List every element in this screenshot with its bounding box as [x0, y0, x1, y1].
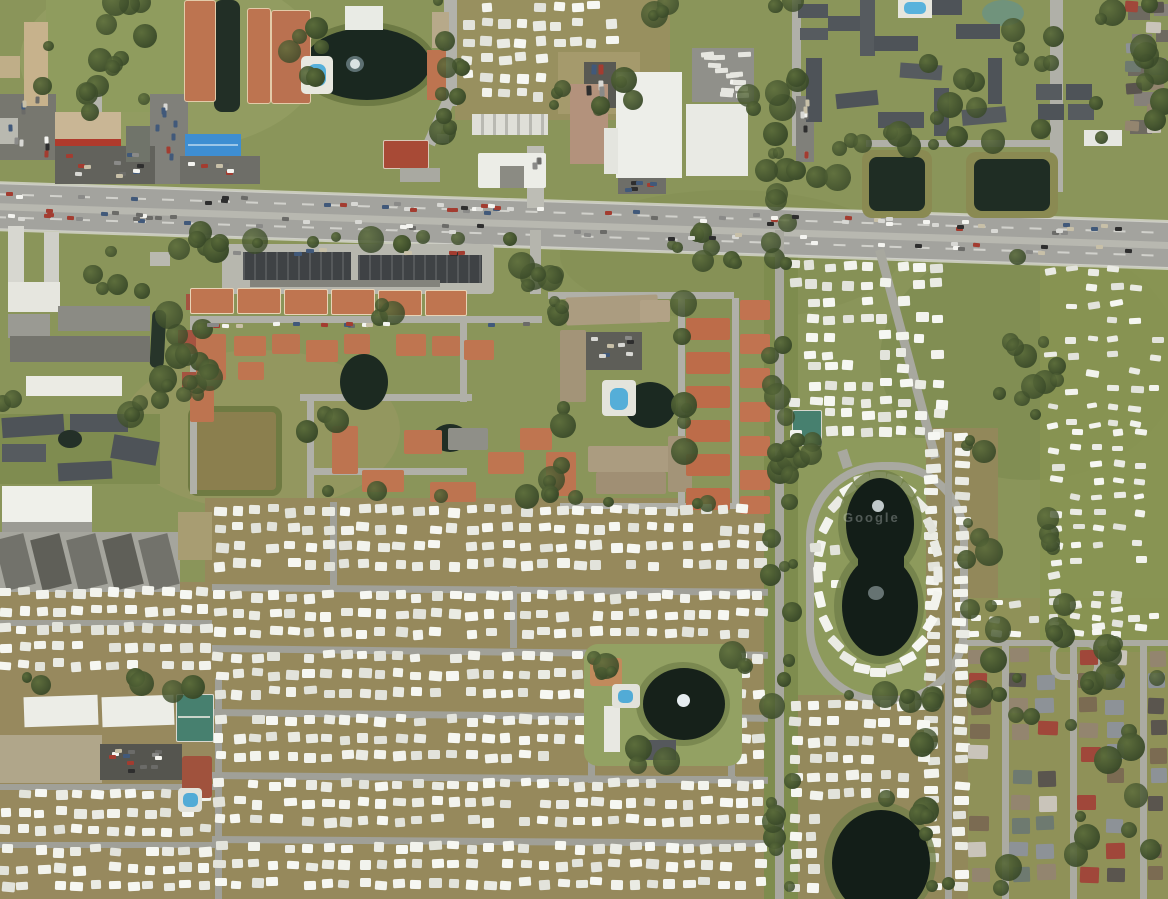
industrial-building: [686, 104, 748, 176]
mobile-home: [284, 778, 296, 787]
mobile-home: [466, 558, 478, 568]
mobile-home: [825, 407, 835, 415]
mobile-home: [321, 860, 334, 870]
mobile-home: [591, 862, 603, 873]
mobile-home: [933, 566, 942, 582]
building: [150, 252, 170, 266]
pool: [904, 2, 926, 14]
mobile-home: [375, 561, 387, 571]
mobile-home: [683, 860, 695, 869]
traffic: [584, 233, 591, 237]
mobile-home: [18, 790, 30, 799]
parked-car: [44, 136, 48, 143]
mobile-home: [701, 796, 714, 805]
mobile-home: [304, 506, 315, 515]
parked-car: [636, 181, 643, 185]
mobile-home: [251, 593, 264, 603]
mobile-home: [498, 19, 511, 29]
roof-seams: [358, 255, 482, 283]
google-watermark: Google: [843, 510, 900, 525]
mobile-home: [197, 604, 208, 614]
mobile-home: [124, 589, 135, 599]
tree: [900, 689, 915, 704]
parked-car: [128, 769, 135, 773]
condo-building: [596, 472, 666, 494]
tree: [211, 234, 229, 252]
tree: [434, 489, 448, 503]
tree: [555, 300, 569, 314]
tree: [1107, 636, 1123, 652]
rv-trailer: [1152, 337, 1164, 343]
traffic: [574, 230, 581, 234]
mobile-home: [338, 879, 349, 888]
mobile-home: [954, 461, 969, 469]
mobile-home: [809, 382, 821, 391]
building: [448, 428, 488, 450]
street: [190, 316, 542, 323]
mobile-home: [576, 880, 588, 888]
condo-building: [331, 289, 375, 315]
mobile-home: [647, 879, 658, 888]
mobile-home: [321, 878, 333, 887]
traffic: [1038, 250, 1045, 254]
mobile-home: [591, 797, 604, 807]
mobile-home: [664, 629, 676, 639]
parked-car: [123, 754, 130, 758]
mobile-home: [558, 879, 570, 888]
mobile-home: [89, 844, 101, 853]
mobile-home: [429, 627, 442, 636]
mobile-home: [501, 504, 512, 514]
mobile-home: [467, 718, 478, 727]
mobile-home: [324, 843, 335, 852]
aerial-canvas[interactable]: Google: [0, 0, 1168, 899]
mobile-home: [378, 543, 390, 552]
mobile-home: [555, 840, 566, 850]
parked-car: [625, 336, 632, 340]
tree: [670, 290, 697, 317]
tree: [1038, 336, 1049, 347]
mobile-home: [216, 672, 229, 681]
mobile-home: [482, 541, 495, 550]
mobile-home: [377, 816, 388, 825]
mobile-home: [502, 859, 514, 869]
mobile-home: [448, 508, 461, 519]
rv-trailer: [1088, 335, 1099, 341]
mobile-home: [287, 860, 300, 869]
house: [969, 816, 989, 832]
street: [1140, 640, 1147, 899]
tree: [656, 5, 669, 18]
mobile-home: [338, 715, 349, 726]
mobile-home: [876, 314, 887, 324]
rv-trailer: [1087, 268, 1099, 276]
mobile-home: [880, 350, 890, 360]
mobile-home: [432, 591, 443, 601]
rv-trailer: [1136, 556, 1147, 563]
rv-trailer: [1070, 558, 1082, 564]
mobile-home: [645, 540, 656, 549]
mobile-home: [485, 753, 499, 763]
mobile-home: [536, 779, 548, 789]
parked-car: [222, 323, 229, 327]
mobile-home: [234, 627, 246, 635]
mobile-home: [412, 859, 422, 868]
mobile-home: [646, 779, 657, 789]
mobile-home: [861, 755, 874, 765]
mobile-home: [304, 627, 315, 637]
parked-car: [163, 110, 167, 117]
mobile-home: [270, 814, 283, 824]
traffic: [1096, 245, 1103, 249]
mobile-home: [573, 560, 587, 570]
mobile-home: [376, 591, 389, 600]
mobile-home: [923, 769, 938, 779]
mobile-home: [791, 849, 803, 859]
parked-car: [132, 153, 139, 157]
mobile-home: [554, 39, 566, 47]
mobile-home: [145, 810, 157, 819]
mobile-home: [573, 817, 586, 825]
mobile-home: [341, 628, 352, 638]
mobile-home: [822, 281, 832, 290]
parked-car: [236, 324, 243, 328]
mobile-home: [320, 669, 332, 678]
traffic: [1026, 250, 1033, 254]
mobile-home: [252, 654, 264, 664]
rv-trailer: [1108, 419, 1119, 426]
rv-trailer: [1029, 616, 1039, 623]
parked-car: [22, 100, 26, 107]
traffic: [962, 220, 969, 224]
rv-trailer: [1086, 284, 1097, 292]
mobile-home: [304, 612, 316, 622]
mobile-home: [648, 562, 659, 571]
tree: [1008, 707, 1024, 723]
mobile-home: [585, 39, 596, 49]
mobile-home: [321, 781, 332, 791]
mobile-home: [791, 736, 802, 745]
traffic: [811, 240, 818, 244]
tree: [196, 364, 223, 391]
mobile-home: [517, 74, 530, 84]
mobile-home: [322, 507, 335, 516]
mobile-home: [484, 504, 495, 512]
mobile-home: [376, 609, 386, 619]
mobile-home: [554, 2, 566, 12]
mobile-home: [446, 750, 457, 759]
tree: [314, 40, 329, 55]
mobile-home: [610, 594, 622, 605]
mobile-home: [841, 396, 853, 405]
mobile-home: [502, 522, 514, 531]
parked-car: [366, 323, 373, 327]
tree: [1041, 533, 1060, 552]
traffic: [932, 223, 939, 227]
mobile-home: [736, 814, 749, 823]
parked-car: [173, 120, 177, 127]
mobile-home: [411, 687, 422, 696]
mobile-home: [338, 860, 351, 870]
mobile-home: [955, 644, 968, 654]
mobile-home: [861, 313, 874, 322]
parked-car: [404, 251, 412, 255]
rv-trailer: [1094, 509, 1106, 515]
mobile-home: [843, 261, 856, 271]
mobile-home: [629, 607, 639, 616]
traffic: [410, 208, 417, 212]
mobile-home: [498, 56, 511, 66]
rv-trailer: [1149, 385, 1159, 391]
mobile-home: [213, 797, 226, 808]
mobile-home: [589, 540, 602, 551]
mobile-home: [411, 751, 423, 760]
mobile-home: [396, 714, 407, 723]
mobile-home: [845, 701, 858, 710]
traffic: [842, 220, 849, 224]
industrial-building: [8, 314, 50, 338]
traffic: [537, 207, 544, 211]
rv-trailer: [1150, 354, 1162, 361]
mobile-home: [53, 825, 65, 835]
mobile-home: [358, 816, 369, 825]
condo-building: [396, 334, 426, 356]
mobile-home: [953, 589, 968, 597]
tree: [872, 681, 899, 708]
tree: [653, 747, 681, 775]
apartment-building: [956, 24, 1000, 39]
fountain: [677, 694, 690, 707]
mobile-home: [214, 562, 226, 573]
traffic: [886, 217, 893, 221]
mobile-home: [146, 847, 159, 856]
mobile-home: [358, 796, 370, 805]
mobile-home: [302, 844, 313, 853]
warehouse: [26, 376, 122, 396]
house: [1011, 794, 1030, 809]
apartment-building: [2, 444, 46, 462]
mobile-home: [324, 561, 335, 571]
mobile-home: [879, 427, 892, 437]
traffic: [978, 223, 985, 227]
mobile-home: [396, 845, 408, 854]
mobile-home: [571, 17, 582, 26]
traffic: [355, 220, 362, 224]
mobile-home: [411, 797, 423, 807]
rv-trailer: [1129, 318, 1141, 324]
parked-car: [137, 164, 144, 168]
traffic: [76, 217, 83, 221]
mobile-home: [896, 426, 907, 435]
mobile-home: [266, 716, 278, 725]
mobile-home: [954, 576, 969, 584]
mobile-home: [734, 843, 746, 851]
mobile-home: [180, 604, 192, 613]
mobile-home: [718, 881, 730, 890]
mobile-home: [269, 782, 281, 792]
parked-car: [625, 188, 632, 192]
mobile-home: [142, 828, 155, 836]
fountain: [868, 586, 884, 600]
mobile-home: [482, 18, 494, 27]
mobile-home: [214, 878, 226, 887]
mobile-home: [414, 718, 426, 727]
mobile-home: [810, 790, 823, 800]
mobile-home: [284, 609, 296, 619]
parked-car: [318, 248, 326, 252]
tree: [81, 103, 99, 121]
mobile-home: [179, 862, 192, 872]
rv-trailer: [1093, 477, 1104, 484]
house: [1150, 719, 1166, 734]
mobile-home: [571, 859, 582, 868]
mobile-home: [926, 659, 939, 667]
traffic: [633, 210, 640, 214]
mobile-home: [285, 845, 295, 853]
mobile-home: [753, 750, 765, 759]
mobile-home: [809, 716, 821, 726]
traffic: [700, 218, 707, 222]
parked-car: [626, 352, 633, 356]
mobile-home: [466, 668, 479, 679]
house: [1125, 1, 1139, 13]
mobile-home: [73, 866, 86, 877]
tree: [783, 654, 795, 666]
mobile-home: [339, 817, 352, 827]
tree: [132, 395, 149, 412]
tree: [1095, 662, 1123, 690]
mobile-home: [841, 359, 852, 370]
traffic: [845, 216, 852, 220]
mobile-home: [234, 753, 246, 763]
mobile-home: [590, 560, 601, 570]
carport: [250, 280, 440, 287]
tree: [761, 232, 781, 252]
tree: [451, 232, 464, 245]
traffic: [205, 201, 212, 205]
rv-trailer: [1135, 463, 1146, 469]
traffic: [303, 220, 310, 224]
mobile-home: [268, 590, 280, 600]
mobile-home: [107, 809, 120, 818]
mobile-home: [2, 844, 13, 853]
mobile-home: [824, 396, 836, 406]
mobile-home: [666, 506, 678, 516]
mobile-home: [755, 859, 767, 869]
mobile-home: [306, 780, 317, 790]
parked-car: [115, 749, 122, 753]
mobile-home: [644, 798, 655, 807]
mobile-home: [70, 624, 81, 633]
rv-trailer: [1065, 337, 1076, 344]
traffic: [437, 203, 444, 207]
tree: [922, 692, 942, 712]
mobile-home: [503, 841, 515, 852]
mobile-home: [0, 622, 12, 632]
traffic: [507, 207, 514, 211]
parked-car: [591, 65, 596, 75]
mobile-home: [53, 608, 66, 617]
parked-car: [618, 342, 625, 346]
mobile-home: [234, 541, 245, 551]
traffic: [6, 192, 13, 196]
mobile-home: [626, 591, 637, 600]
condo-building: [488, 452, 524, 474]
mobile-home: [608, 816, 619, 825]
mobile-home: [0, 587, 11, 596]
mobile-home: [180, 624, 192, 633]
mobile-home: [198, 863, 209, 873]
mobile-home: [323, 626, 334, 637]
mobile-home: [804, 260, 815, 270]
mobile-home: [178, 880, 190, 888]
pond: [858, 538, 904, 582]
mobile-home: [304, 753, 316, 763]
tree: [554, 80, 571, 97]
parked-car: [19, 139, 23, 146]
tree: [993, 387, 1005, 399]
tree: [306, 68, 325, 87]
mobile-home: [463, 20, 475, 30]
mobile-home: [248, 779, 259, 788]
mobile-home: [448, 733, 461, 744]
mobile-home: [535, 35, 546, 45]
mobile-home: [611, 611, 623, 620]
tree: [1050, 373, 1063, 386]
mobile-home: [953, 715, 966, 724]
mobile-home: [829, 544, 840, 555]
pool: [610, 388, 628, 410]
condo-building: [344, 334, 370, 354]
parked-car: [804, 152, 808, 159]
mobile-home: [212, 651, 224, 661]
parked-car: [116, 174, 123, 178]
tree: [1144, 109, 1166, 131]
mobile-home: [35, 788, 47, 796]
mobile-home: [606, 35, 619, 43]
mobile-home: [665, 800, 677, 809]
tree: [975, 538, 1003, 566]
mobile-home: [860, 788, 870, 798]
mobile-home: [199, 661, 212, 670]
traffic: [133, 217, 140, 221]
mobile-home: [826, 773, 838, 782]
mobile-home: [413, 779, 424, 788]
street: [460, 320, 467, 402]
mobile-home: [699, 560, 711, 569]
tree: [755, 159, 778, 182]
mobile-home: [735, 608, 749, 617]
mobile-home: [248, 842, 260, 851]
tree: [181, 675, 205, 699]
condo-building: [520, 428, 552, 450]
mobile-home: [554, 628, 566, 637]
apartment-building: [874, 36, 918, 51]
condo-building: [234, 336, 266, 356]
mobile-home: [665, 612, 678, 621]
tree: [1043, 55, 1059, 71]
mobile-home: [521, 508, 533, 517]
mobile-home: [645, 842, 655, 851]
storage-unit-lines: [472, 114, 548, 135]
parked-car: [201, 164, 208, 168]
mobile-home: [411, 594, 422, 604]
mobile-home: [374, 736, 387, 744]
mobile-home: [323, 650, 335, 659]
mobile-home: [340, 506, 351, 515]
mobile-home: [483, 880, 496, 889]
pond: [869, 157, 925, 211]
